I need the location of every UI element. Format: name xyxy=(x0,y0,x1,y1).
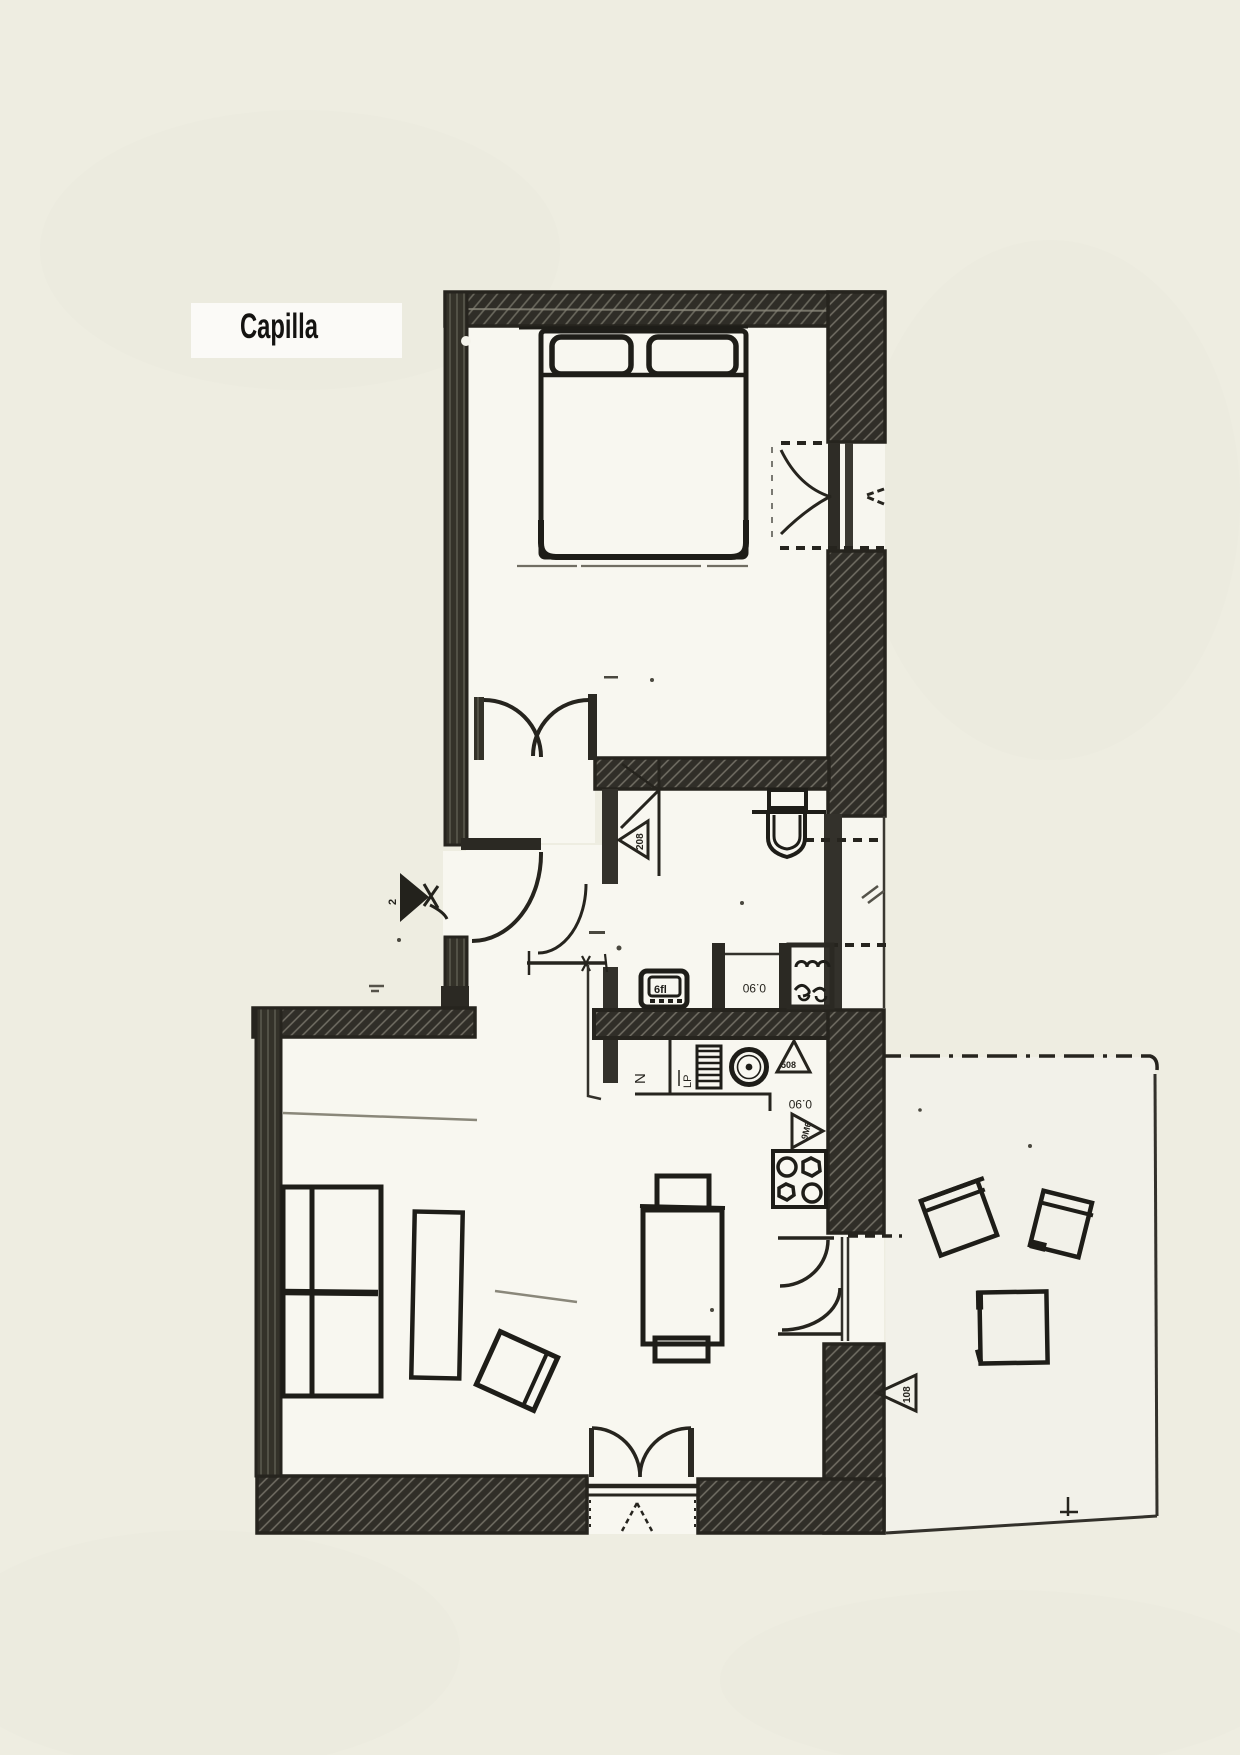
svg-text:0.90: 0.90 xyxy=(742,981,766,995)
svg-text:N: N xyxy=(632,1073,649,1084)
svg-text:108: 108 xyxy=(902,1386,913,1403)
svg-text:2: 2 xyxy=(387,899,399,905)
svg-text:208: 208 xyxy=(635,833,646,850)
svg-text:Capilla: Capilla xyxy=(240,308,318,347)
svg-text:LP: LP xyxy=(682,1075,694,1088)
svg-text:508: 508 xyxy=(781,1060,796,1070)
svg-text:0.90: 0.90 xyxy=(788,1097,812,1111)
svg-text:6fl: 6fl xyxy=(654,984,667,996)
